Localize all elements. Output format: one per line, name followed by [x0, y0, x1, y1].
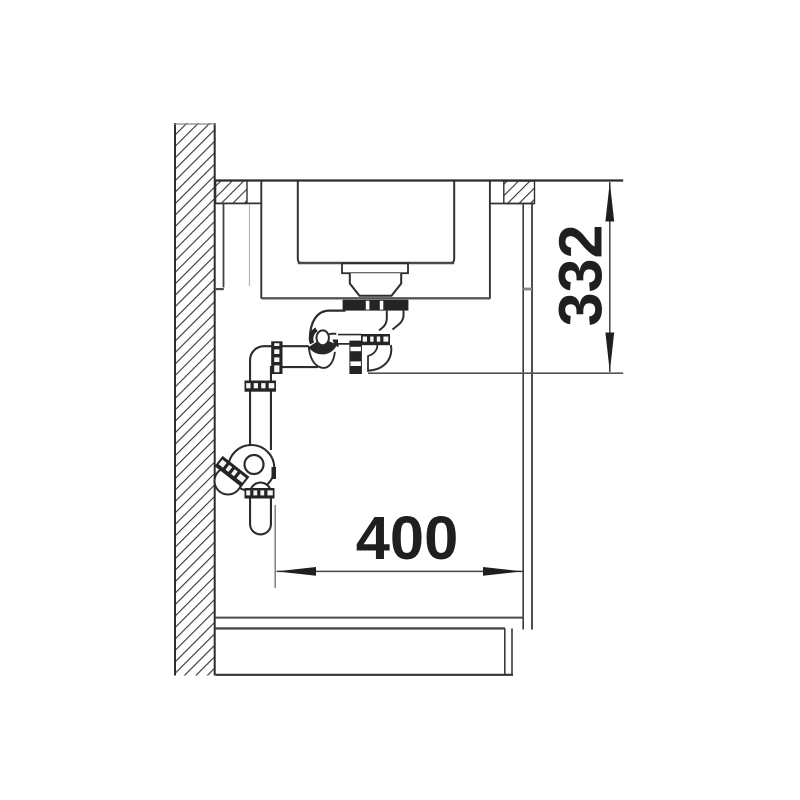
svg-text:332: 332 — [547, 225, 615, 327]
svg-text:400: 400 — [356, 504, 459, 573]
